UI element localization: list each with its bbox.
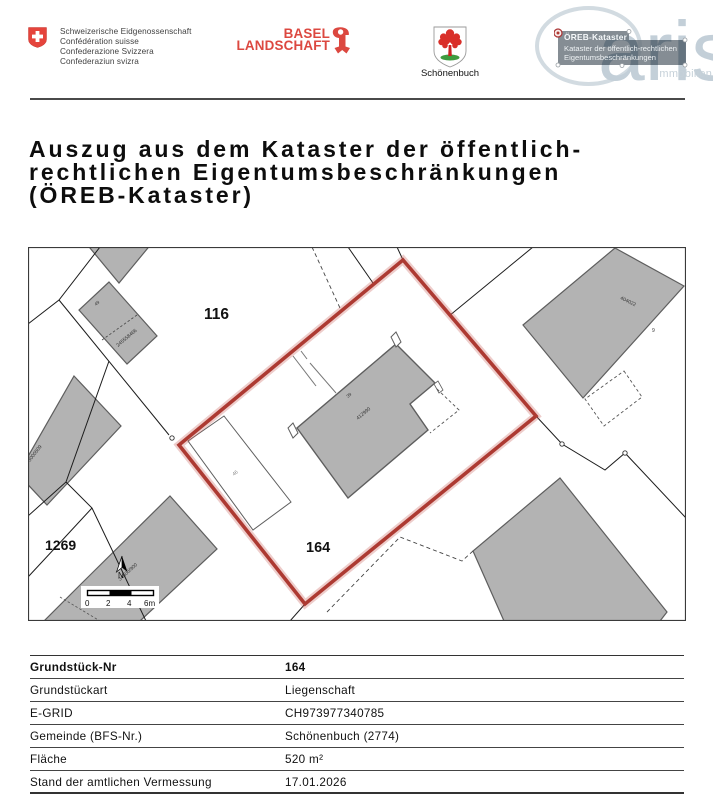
svg-text:4: 4	[127, 599, 132, 608]
svg-text:2: 2	[106, 599, 111, 608]
svg-text:1269: 1269	[45, 537, 76, 553]
svg-text:9: 9	[652, 328, 655, 334]
svg-text:0: 0	[85, 599, 90, 608]
svg-text:N: N	[118, 571, 124, 580]
svg-text:116: 116	[204, 306, 229, 323]
svg-text:6m: 6m	[144, 599, 155, 608]
svg-text:164: 164	[306, 540, 330, 556]
